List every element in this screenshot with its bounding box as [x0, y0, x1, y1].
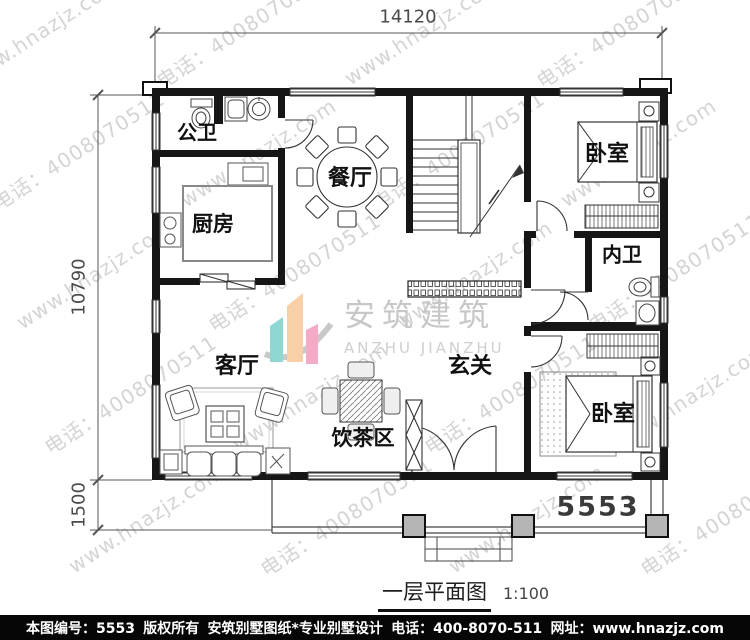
drawing-title: 一层平面图: [378, 576, 491, 612]
footer-doc-number: 本图编号：5553: [26, 618, 135, 638]
room-label-dining: 餐厅: [328, 160, 372, 192]
dim-main-depth: 10790: [69, 258, 90, 315]
room-label-living: 客厅: [215, 348, 259, 380]
drawing-title-block: 一层平面图 1:100: [378, 576, 549, 612]
room-label-kitchen: 厨房: [192, 208, 234, 238]
living-room-furniture: [160, 384, 290, 476]
room-label-bedroom-bottom: 卧室: [591, 396, 635, 428]
footer-bar: 本图编号：5553 版权所有 安筑别墅图纸*专业别墅设计 电话：400-8070…: [0, 615, 750, 640]
footer-studio: 安筑别墅图纸*专业别墅设计: [208, 618, 383, 638]
room-label-entry: 玄关: [448, 348, 492, 380]
shoe-cabinet: [408, 281, 521, 297]
drawing-scale: 1:100: [503, 584, 549, 603]
floor-plan-page: www.hnazjz.com电话：4008070511www.hnazjz.co…: [0, 0, 750, 640]
room-label-inner-bath: 内卫: [602, 239, 642, 268]
footer-copyright: 版权所有: [143, 618, 199, 638]
inner-bath-fixtures: [629, 277, 659, 325]
footer-website: 网址：www.hnazjz.com: [550, 618, 724, 638]
room-label-tea-area: 饮茶区: [332, 422, 395, 452]
room-label-public-bath: 公卫: [177, 117, 217, 146]
dim-porch-depth: 1500: [69, 482, 90, 528]
floor-plan-drawing: [0, 0, 750, 640]
plan-number: 5553: [556, 492, 639, 523]
room-label-bedroom-top: 卧室: [585, 136, 629, 168]
dim-total-width: 14120: [379, 7, 436, 28]
footer-phone: 电话：400-8070-511: [391, 618, 542, 638]
staircase: [413, 95, 524, 237]
